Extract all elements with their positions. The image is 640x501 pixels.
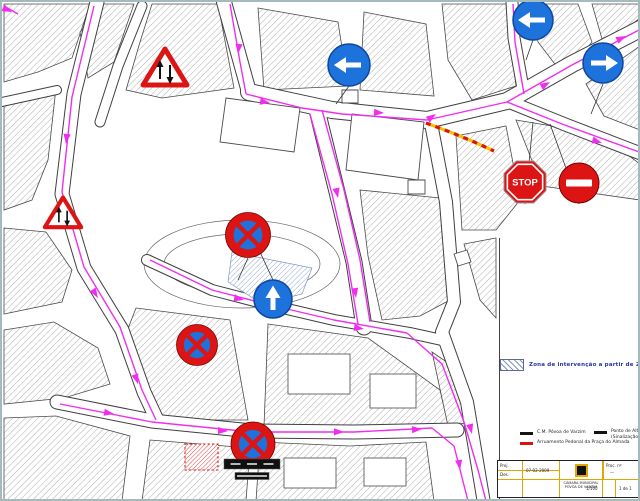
municipality-logo-icon <box>575 464 588 477</box>
legend-entry-label: Ponto de Alteração de Trânsito (Sinaliza… <box>611 429 640 440</box>
zone-label: Zona de intervenção a partir de 28/02/20… <box>529 362 640 368</box>
sign-leader-line <box>526 40 533 60</box>
legend-entry-label: C.M. Póvoa de Varzim <box>537 430 586 436</box>
two-way-warning-sign-icon <box>45 197 81 227</box>
title-grid-line <box>603 461 604 479</box>
building-block <box>256 442 434 501</box>
building-block <box>464 238 496 318</box>
traffic-route-line <box>432 428 468 501</box>
no-entry-sign-icon <box>559 163 599 203</box>
building-outline <box>408 180 425 194</box>
title-grid-line <box>615 479 616 497</box>
building-block <box>4 416 130 501</box>
legend-entry-label: Arruamento Pedonal da Praça do Almada <box>537 440 630 446</box>
mandatory-left-sign-icon <box>328 44 370 86</box>
no-stopping-sign-icon <box>226 213 271 258</box>
red-hatched-parcel <box>185 444 218 470</box>
process-value: — <box>610 470 614 475</box>
building-outline <box>346 114 424 180</box>
title-row2-label: Des. <box>500 472 509 477</box>
title-block: Proj. Des. 07-02-2009 Proc. nº — CÂMARA … <box>497 460 640 498</box>
building-block <box>442 4 516 100</box>
building-block <box>360 190 450 320</box>
ahead-only-sign-icon <box>254 280 292 318</box>
building-block <box>360 12 434 96</box>
no-stopping-sign-icon <box>177 325 218 366</box>
panel-sign-icon <box>224 459 280 469</box>
process-label: Proc. nº <box>606 463 622 468</box>
title-date: 07-02-2009 <box>526 468 549 473</box>
building-outline <box>284 458 336 488</box>
black-line-swatch <box>520 432 533 435</box>
legend-entry-alteracao: Ponto de Alteração de Trânsito (Sinaliza… <box>594 429 640 440</box>
map-canvas: STOP <box>2 2 640 501</box>
title-row1-label: Proj. <box>500 463 509 468</box>
mandatory-right-sign-icon <box>583 43 623 83</box>
black-line-swatch <box>594 431 607 434</box>
building-block <box>4 88 56 210</box>
sheet-number: 1 de 1 <box>619 486 632 491</box>
mandatory-left-sign-icon <box>513 2 553 40</box>
building-block <box>4 228 72 314</box>
svg-text:STOP: STOP <box>512 178 538 189</box>
zone-hatch-swatch <box>500 359 524 371</box>
municipality-logo-box: CÂMARA MUNICIPAL PÓVOA DE VARZIM <box>559 461 603 497</box>
building-outline <box>364 458 406 486</box>
stop-sign-icon: STOP <box>504 161 546 203</box>
panel-sign-icon <box>235 473 269 480</box>
legend-entry-cm: C.M. Póvoa de Varzim <box>520 430 586 436</box>
red-line-swatch <box>520 442 533 445</box>
building-outline <box>220 98 300 152</box>
drawing-sheet: STOP Zona de intervenção a partir de 28/… <box>0 0 640 501</box>
legend-zone: Zona de intervenção a partir de 28/02/20… <box>500 359 640 371</box>
scale-value: 1/500 <box>586 486 598 491</box>
legend-entry-pedonal: Arruamento Pedonal da Praça do Almada <box>520 440 630 446</box>
building-outline <box>288 354 350 394</box>
building-block <box>4 322 110 404</box>
building-outline <box>370 374 416 408</box>
